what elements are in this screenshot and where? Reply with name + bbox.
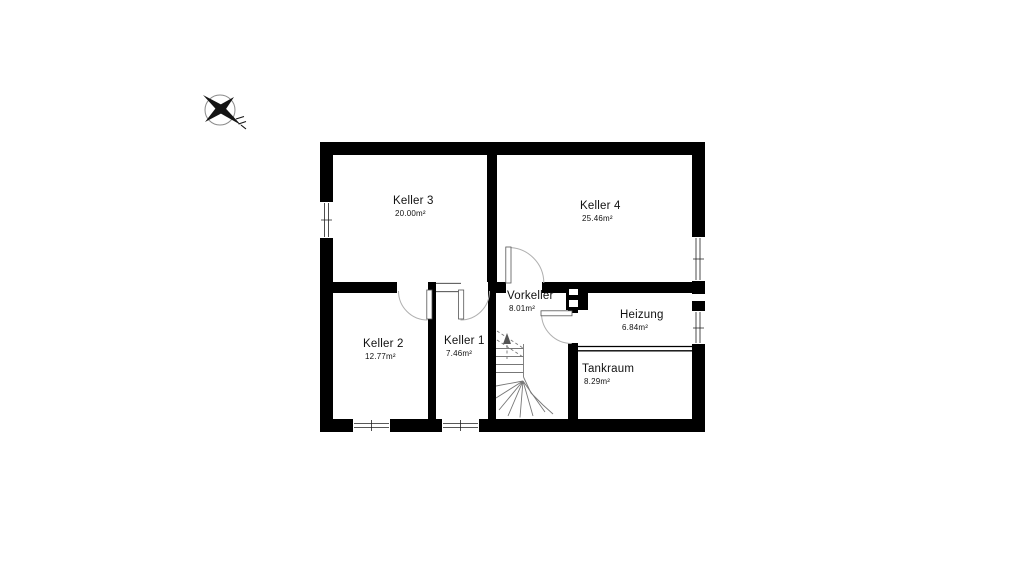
room-label-keller-1: Keller 1 7.46m² <box>444 336 485 358</box>
door-leaf-keller4 <box>506 247 511 283</box>
room-name: Tankraum <box>582 364 634 375</box>
room-area: 20.00m² <box>395 209 434 218</box>
stair-direction-arrow <box>503 333 511 344</box>
room-label-vorkeller: Vorkeller 8.01m² <box>507 291 554 313</box>
door-leaf-keller1 <box>459 290 464 319</box>
room-label-keller-3: Keller 3 20.00m² <box>393 196 434 218</box>
door-arc-keller4 <box>508 248 544 284</box>
partition-heizung-tankraum <box>578 347 692 351</box>
room-label-tankraum: Tankraum 8.29m² <box>582 364 634 386</box>
room-name: Keller 3 <box>393 196 434 207</box>
room-name: Keller 2 <box>363 339 404 350</box>
compass-rose-icon <box>203 95 246 129</box>
room-name: Keller 1 <box>444 336 485 347</box>
room-name: Keller 4 <box>580 201 621 212</box>
room-area: 12.77m² <box>365 352 404 361</box>
door-arc-keller2 <box>399 291 428 320</box>
room-area: 8.01m² <box>509 304 554 313</box>
room-label-keller-2: Keller 2 12.77m² <box>363 339 404 361</box>
door-arc-heizung <box>542 313 572 343</box>
room-name: Heizung <box>620 310 664 321</box>
room-area: 7.46m² <box>446 349 485 358</box>
room-area: 6.84m² <box>622 323 664 332</box>
door-arc-keller1 <box>461 291 490 320</box>
floorplan-drawing <box>0 0 1024 575</box>
room-area: 8.29m² <box>584 377 634 386</box>
room-label-keller-4: Keller 4 25.46m² <box>580 201 621 223</box>
room-name: Vorkeller <box>507 291 554 302</box>
staircase <box>496 331 553 418</box>
floorplan-page: Keller 3 20.00m² Keller 4 25.46m² Keller… <box>0 0 1024 575</box>
room-area: 25.46m² <box>582 214 621 223</box>
door-leaf-keller2 <box>427 290 432 319</box>
room-label-heizung: Heizung 6.84m² <box>620 310 664 332</box>
